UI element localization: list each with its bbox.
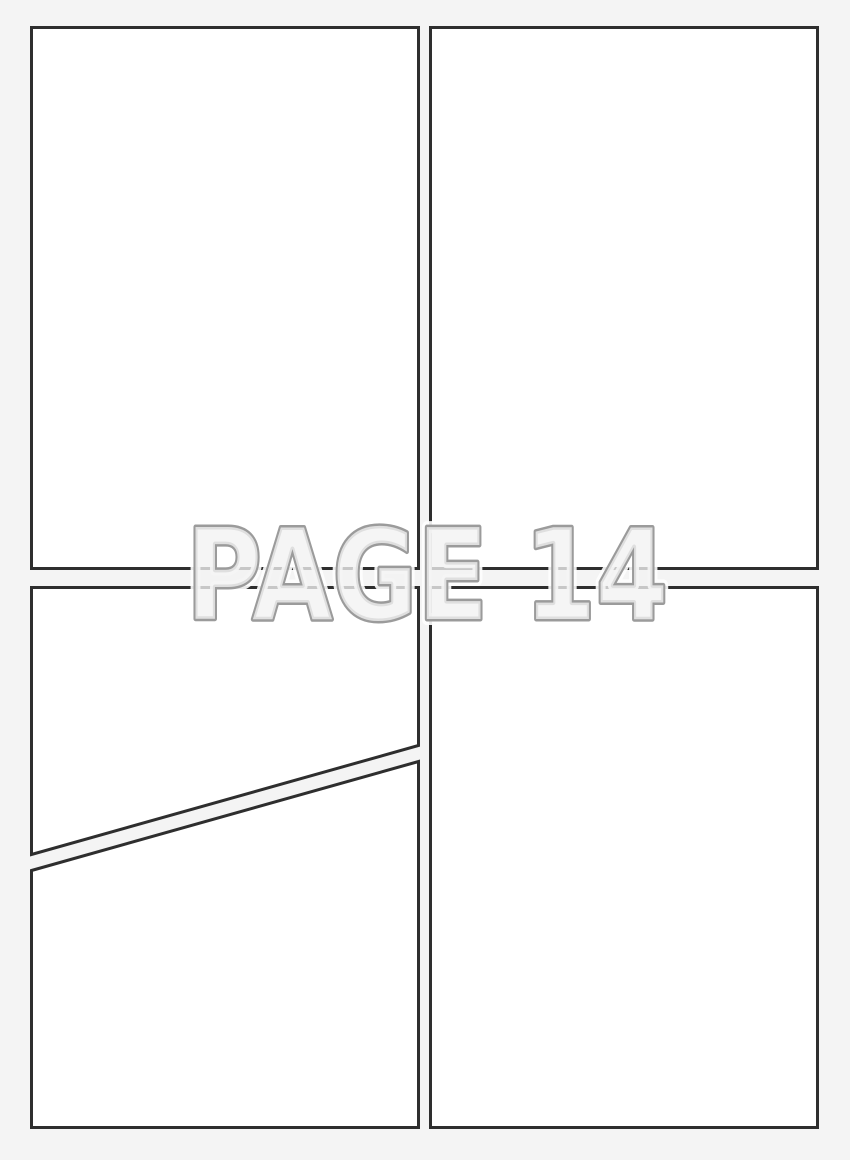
page-watermark-label: PAGE 14 [186, 502, 668, 649]
comic-page-template: PAGE 14 PAGE 14 PAGE 14 [0, 0, 850, 1160]
page-watermark: PAGE 14 PAGE 14 PAGE 14 [186, 502, 668, 649]
panel-top-left [32, 28, 419, 569]
panel-bottom-right [431, 588, 818, 1128]
panel-grid: PAGE 14 PAGE 14 PAGE 14 [0, 0, 850, 1160]
panel-top-right [431, 28, 818, 569]
